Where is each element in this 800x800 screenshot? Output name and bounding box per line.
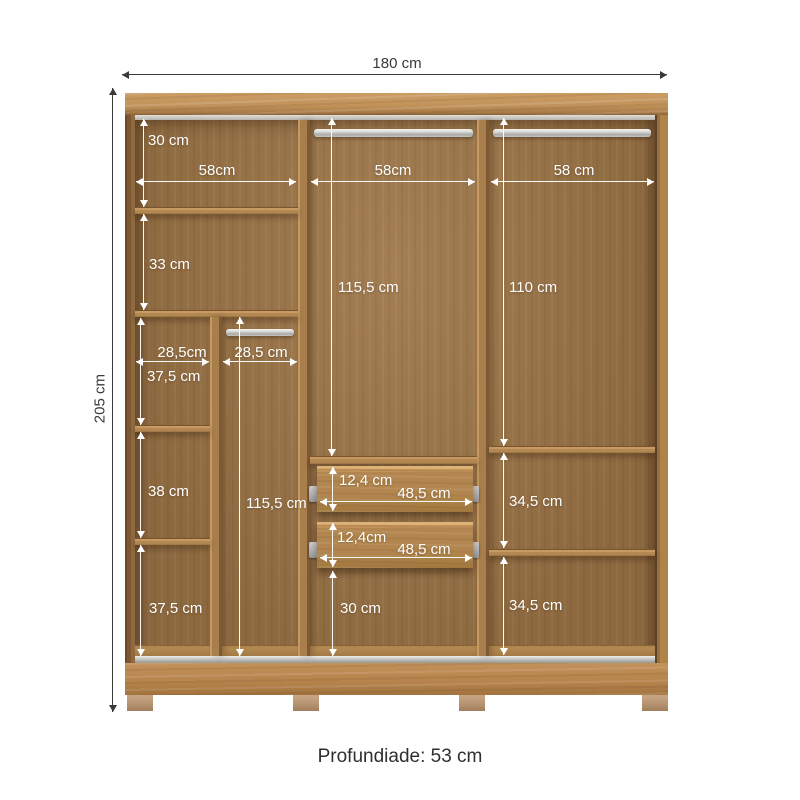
left-second-section-label: 33 cm (149, 256, 190, 273)
total-width-label: 180 cm (372, 55, 421, 72)
left-sub-section3-label: 37,5 cm (149, 600, 202, 617)
left-sub-section1-line (140, 318, 141, 425)
wardrobe-foot-3 (459, 695, 485, 711)
right-column-shelf-1 (489, 446, 655, 453)
drawer2-height-label: 12,4cm (337, 529, 386, 546)
total-height-label: 205 cm (91, 371, 108, 427)
drawer1-height-label: 12,4 cm (339, 472, 392, 489)
mid-hang-height-label: 115,5 cm (338, 279, 399, 296)
mid-bottom-section-label: 30 cm (340, 600, 381, 617)
total-width-dimension-line (122, 74, 667, 75)
left-hang-height-label: 115,5 cm (246, 495, 307, 512)
depth-caption: Profundiade: 53 cm (318, 746, 483, 768)
right-section2-label: 34,5 cm (509, 597, 562, 614)
left-column-sub-divider (210, 317, 222, 656)
left-hanging-rail (226, 329, 294, 336)
left-second-section-line (143, 214, 144, 310)
right-section1-line (503, 453, 504, 548)
mid-bottom-section-line (332, 571, 333, 656)
left-sub-column-shelf-1 (135, 425, 210, 432)
left-hang-height-line (239, 317, 240, 656)
left-top-section-label: 30 cm (148, 132, 189, 149)
right-col-width-label: 58 cm (554, 162, 595, 179)
wardrobe-dimension-diagram: 180 cm 205 cm 58cm 58cm 58 cm 30 cm 33 (0, 0, 800, 800)
mid-col-width-label: 58cm (375, 162, 412, 179)
left-col-width-label: 58cm (199, 162, 236, 179)
sliding-door-top-track (135, 115, 655, 120)
left-sub-section2-line (140, 432, 141, 538)
right-hang-height-line (503, 118, 504, 446)
left-sub-left-width-label: 28,5cm (157, 344, 206, 361)
left-sub-right-width-line (223, 361, 297, 362)
right-section2-line (503, 557, 504, 655)
sliding-door-bottom-track (135, 656, 655, 663)
left-top-section-line (143, 119, 144, 207)
drawer2-width-line (320, 557, 472, 558)
partition-middle-right (477, 120, 489, 656)
left-sub-column-shelf-2 (135, 538, 210, 545)
drawer1-width-label: 48,5 cm (397, 485, 450, 502)
right-hang-height-label: 110 cm (509, 279, 557, 296)
wardrobe-foot-1 (127, 695, 153, 711)
left-col-width-line (136, 181, 296, 182)
wardrobe-plinth (125, 663, 668, 695)
total-height-dimension-line (112, 88, 113, 712)
middle-column-shelf-above-drawers (310, 456, 477, 464)
right-section1-label: 34,5 cm (509, 493, 562, 510)
middle-hanging-rail (314, 129, 473, 137)
left-sub-section1-label: 37,5 cm (147, 368, 200, 385)
partition-left-middle (298, 120, 310, 656)
wardrobe-foot-4 (642, 695, 668, 711)
drawer1-height-line (332, 467, 333, 511)
wardrobe-left-side-wall (125, 115, 135, 663)
drawer2-height-line (332, 523, 333, 567)
mid-col-width-line (311, 181, 475, 182)
wardrobe-foot-2 (293, 695, 319, 711)
right-col-width-line (491, 181, 654, 182)
wardrobe-right-side-wall (655, 115, 668, 663)
mid-hang-height-line (331, 118, 332, 456)
drawer2-width-label: 48,5 cm (397, 541, 450, 558)
right-hanging-rail (493, 129, 651, 137)
left-sub-section3-line (140, 545, 141, 656)
left-column-shelf-1 (135, 207, 298, 214)
left-sub-right-width-label: 28,5 cm (234, 344, 287, 361)
drawer1-width-line (320, 501, 472, 502)
left-sub-left-width-line (136, 361, 209, 362)
left-sub-section2-label: 38 cm (148, 483, 189, 500)
right-column-shelf-2 (489, 549, 655, 556)
left-column-shelf-2 (135, 310, 298, 317)
wardrobe-top-panel (125, 93, 668, 115)
